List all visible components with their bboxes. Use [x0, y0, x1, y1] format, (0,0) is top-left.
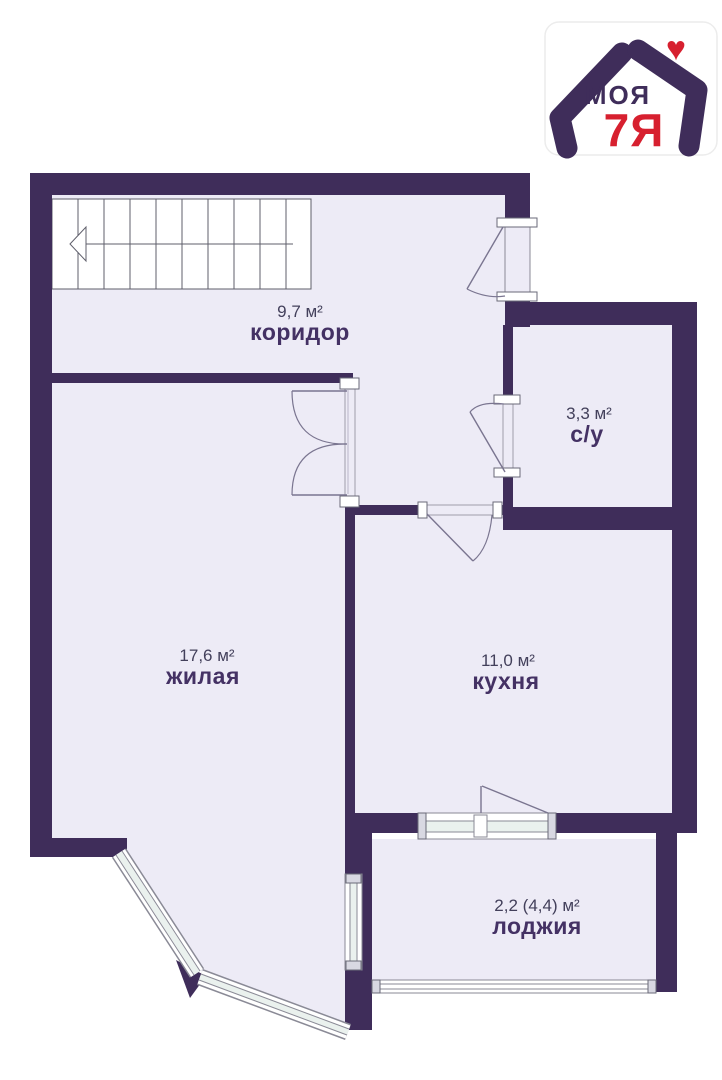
wall-loggia-right [656, 833, 677, 992]
wall-right [672, 302, 697, 833]
room-living-floor [52, 383, 345, 1030]
wall-top [30, 173, 530, 195]
floor-plan-page: 9,7 м² коридор 3,3 м² с/у 17,6 м² жилая … [0, 0, 722, 1080]
wall-kitchen-bottom-right [556, 813, 697, 833]
wall-kitchen-bottom-left [355, 813, 418, 833]
wall-bathroom-west-upper [503, 325, 513, 397]
wall-left [30, 173, 52, 857]
logo-text-bottom: 7Я [604, 104, 665, 156]
room-kitchen-label: кухня [472, 668, 539, 694]
wall-bathroom-top [505, 302, 697, 325]
wall-kitchen-west [345, 505, 355, 833]
wall-hall-kitchen-left [355, 505, 418, 515]
agency-logo: ♥ МОЯ 7Я [545, 22, 717, 156]
wall-left-bay-stub [30, 838, 127, 857]
loggia-glazing [372, 980, 656, 993]
living-loggia-window [345, 874, 362, 970]
balcony-window [418, 813, 556, 839]
stairs [52, 199, 311, 289]
logo-heart-icon: ♥ [666, 30, 686, 68]
wall-living-corridor [52, 373, 353, 383]
hallway-floor [353, 373, 503, 508]
room-corridor-label: коридор [250, 319, 350, 345]
room-bathroom-label: с/у [570, 421, 603, 447]
wall-bathroom-bottom [503, 507, 672, 530]
room-living-label: жилая [165, 663, 240, 689]
balcony-mullion [474, 815, 487, 837]
room-loggia-label: лоджия [492, 913, 582, 939]
floor-plan: 9,7 м² коридор 3,3 м² с/у 17,6 м² жилая … [0, 0, 722, 1080]
